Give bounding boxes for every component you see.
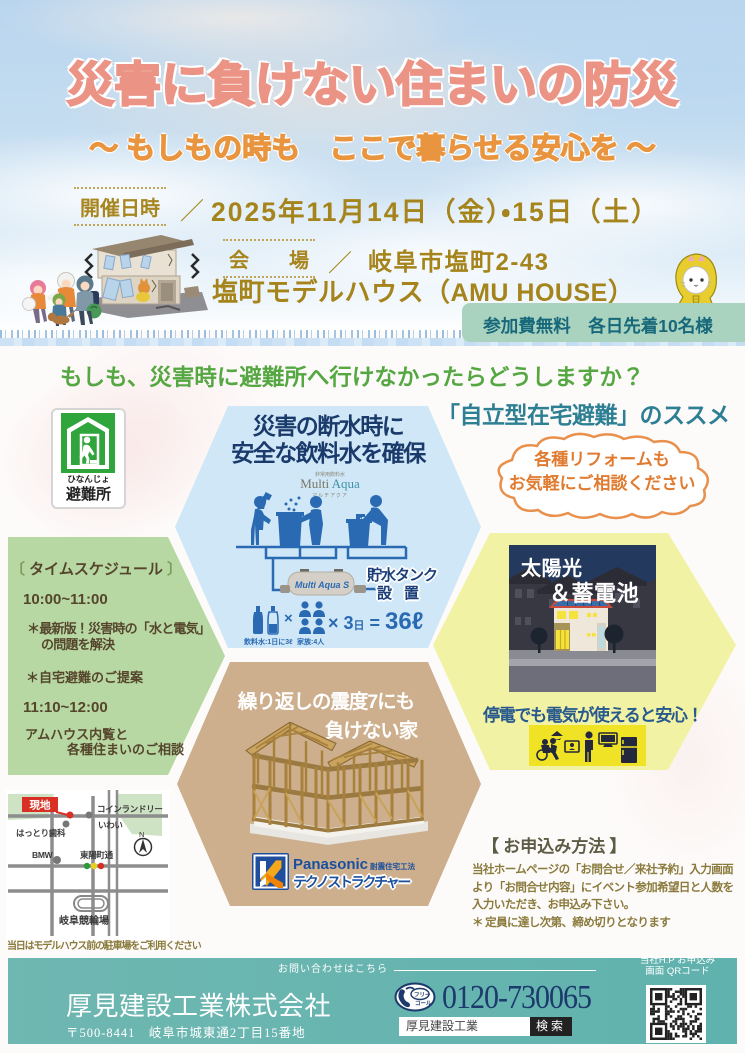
svg-text:岐阜競輪場: 岐阜競輪場 xyxy=(59,914,109,927)
svg-text:現地: 現地 xyxy=(30,799,51,812)
svg-text:N: N xyxy=(139,830,144,839)
svg-text:東陽町通: 東陽町通 xyxy=(80,850,114,860)
svg-text:コインランドリー: コインランドリー xyxy=(97,804,163,814)
svg-text:フリー: フリー xyxy=(414,992,431,999)
svg-text:BMW: BMW xyxy=(32,850,54,860)
svg-text:いわい: いわい xyxy=(98,820,123,830)
svg-text:Multi Aqua S: Multi Aqua S xyxy=(295,580,349,590)
svg-text:コール: コール xyxy=(415,1000,432,1007)
svg-text:はっとり歯科: はっとり歯科 xyxy=(16,828,66,838)
